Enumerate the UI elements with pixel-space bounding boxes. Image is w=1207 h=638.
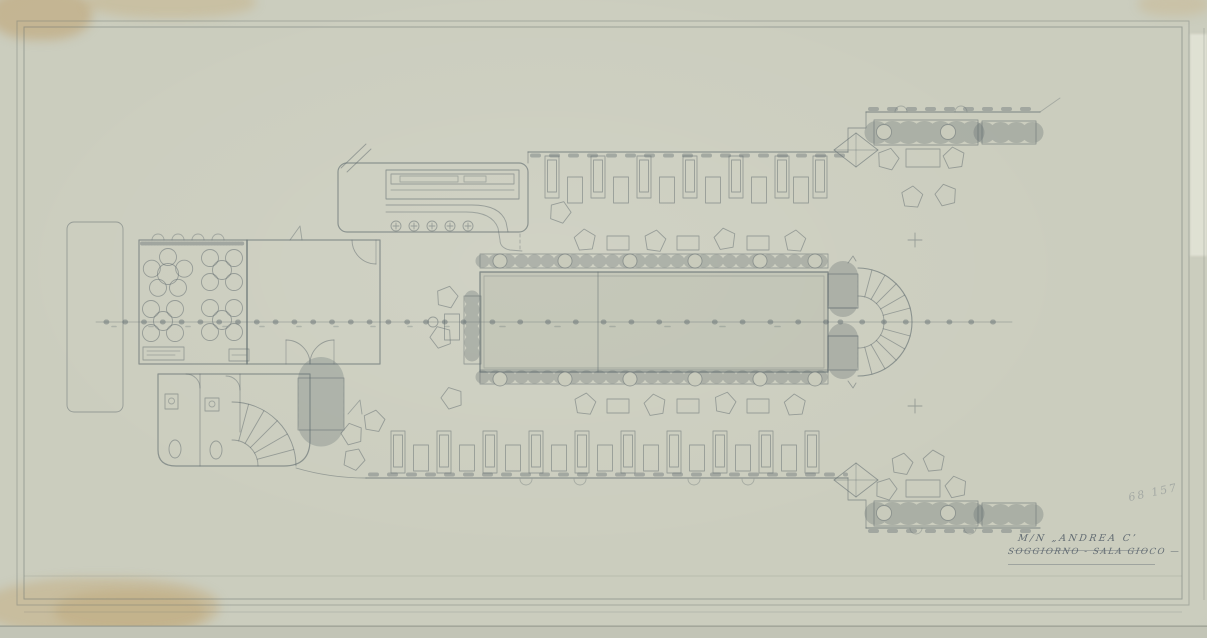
bar-area [338,144,528,251]
port-deck-structure [67,222,123,412]
promenade-bottom [339,384,848,485]
dining-room [139,234,249,364]
scan-edge-strip [0,626,1207,638]
promenade-top [520,152,848,252]
seating-section-bottom-right [866,449,1040,534]
vessel-name: M/N „ANDREA C’ [1007,533,1169,544]
title-underline-2 [1008,564,1155,565]
saloon-structure [427,254,828,386]
title-block: M/N „ANDREA C’ SOGGIORNO - SALA GIOCO — [1008,533,1168,557]
title-underline-1 [1014,550,1148,551]
drawing-subject: SOGGIORNO - SALA GIOCO — [1007,547,1168,557]
blueprint-sheet: M/N „ANDREA C’ SOGGIORNO - SALA GIOCO — … [0,0,1207,638]
game-room-annex [247,226,380,364]
seating-section-top-right [866,98,1060,207]
toilet-block [158,374,366,478]
